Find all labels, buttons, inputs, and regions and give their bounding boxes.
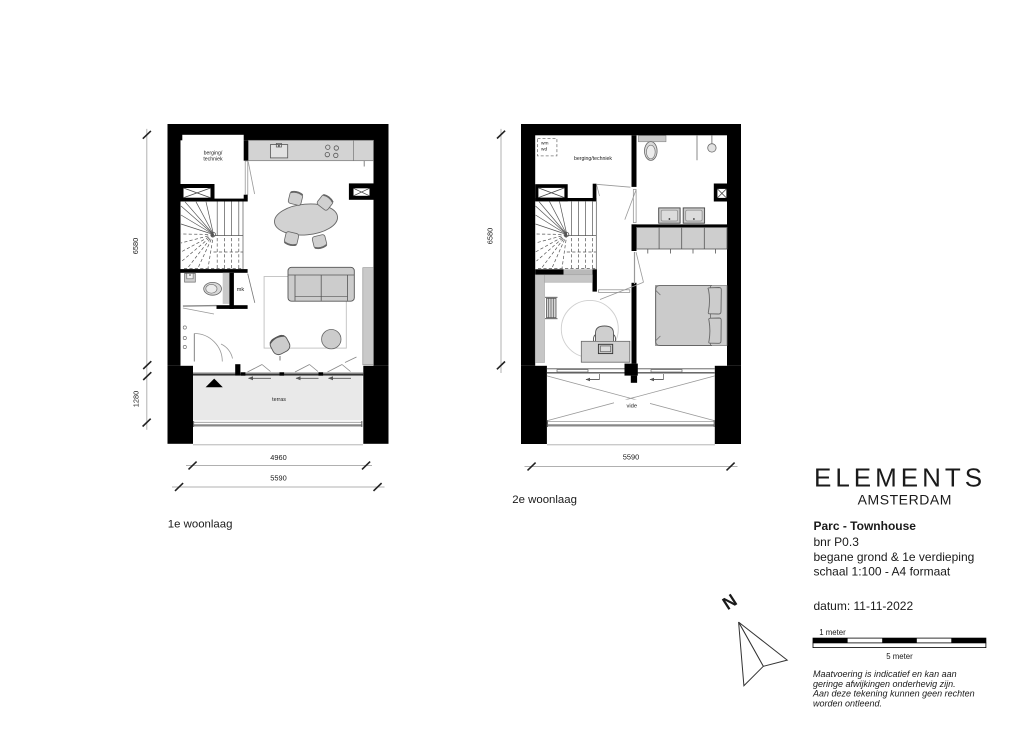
svg-text:5590: 5590: [623, 453, 639, 462]
svg-text:Aan deze tekening kunnen geen: Aan deze tekening kunnen geen rechten: [812, 689, 975, 699]
svg-text:mk: mk: [237, 287, 245, 293]
svg-text:2e woonlaag: 2e woonlaag: [512, 494, 577, 506]
svg-text:1 meter: 1 meter: [819, 628, 846, 637]
svg-text:techniek: techniek: [203, 157, 223, 163]
svg-text:vide: vide: [626, 404, 637, 410]
svg-text:Parc - Townhouse: Parc - Townhouse: [814, 519, 917, 533]
svg-text:terras: terras: [272, 397, 286, 403]
svg-text:worden ontleend.: worden ontleend.: [813, 698, 882, 708]
svg-text:Maatvoering is indicatief en k: Maatvoering is indicatief en kan aan: [813, 669, 957, 679]
svg-text:wd: wd: [541, 147, 547, 153]
svg-text:begane grond & 1e verdieping: begane grond & 1e verdieping: [814, 550, 975, 564]
svg-text:wm: wm: [541, 142, 548, 147]
svg-text:N: N: [719, 590, 741, 614]
svg-text:4960: 4960: [270, 453, 286, 462]
svg-text:5 meter: 5 meter: [886, 652, 913, 661]
svg-text:bnr P0.3: bnr P0.3: [814, 535, 860, 549]
svg-text:ELEMENTS: ELEMENTS: [814, 462, 986, 492]
svg-text:5590: 5590: [270, 474, 286, 483]
svg-text:datum: 11-11-2022: datum: 11-11-2022: [814, 599, 914, 613]
svg-text:AMSTERDAM: AMSTERDAM: [858, 492, 952, 508]
svg-text:berging/techniek: berging/techniek: [574, 156, 612, 162]
svg-text:schaal 1:100 - A4 formaat: schaal 1:100 - A4 formaat: [814, 564, 951, 578]
svg-text:6580: 6580: [486, 228, 495, 244]
svg-text:geringe afwijkingen onderhevig: geringe afwijkingen onderhevig zijn.: [813, 679, 956, 689]
svg-text:6580: 6580: [131, 238, 140, 254]
svg-text:1280: 1280: [131, 391, 140, 407]
svg-text:1e woonlaag: 1e woonlaag: [168, 519, 233, 531]
